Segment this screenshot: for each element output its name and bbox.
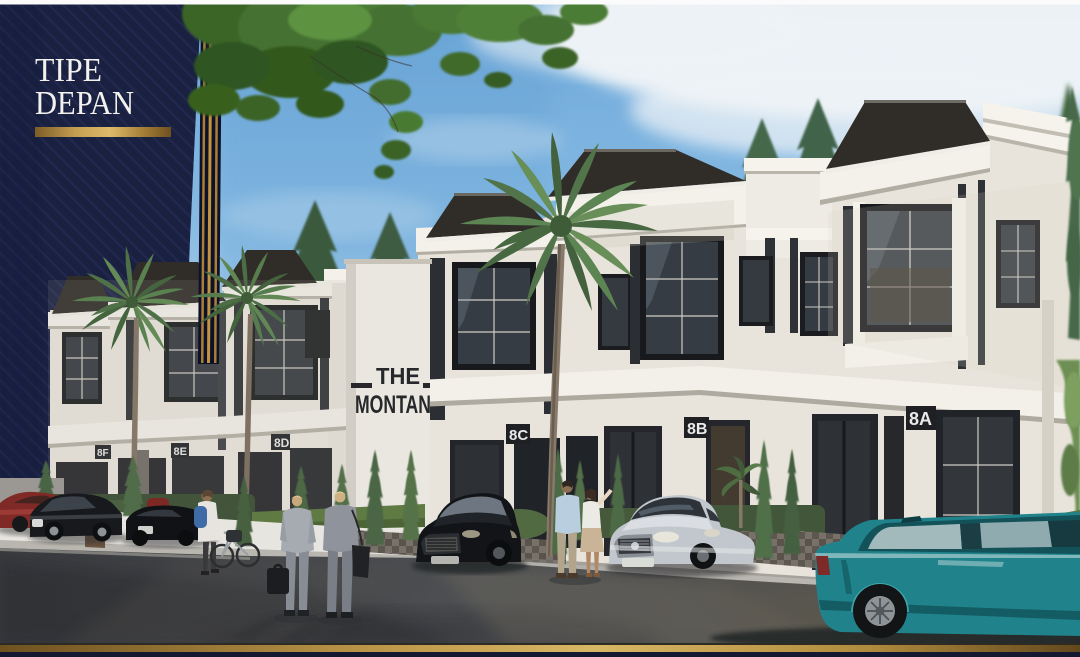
svg-text:TIPE: TIPE [35, 52, 102, 89]
svg-text:THE: THE [376, 363, 420, 389]
svg-text:8A: 8A [909, 409, 932, 429]
svg-text:8C: 8C [509, 427, 528, 444]
svg-text:8B: 8B [687, 421, 707, 438]
svg-text:MONTAN: MONTAN [355, 391, 431, 419]
svg-text:DEPAN: DEPAN [35, 85, 134, 122]
